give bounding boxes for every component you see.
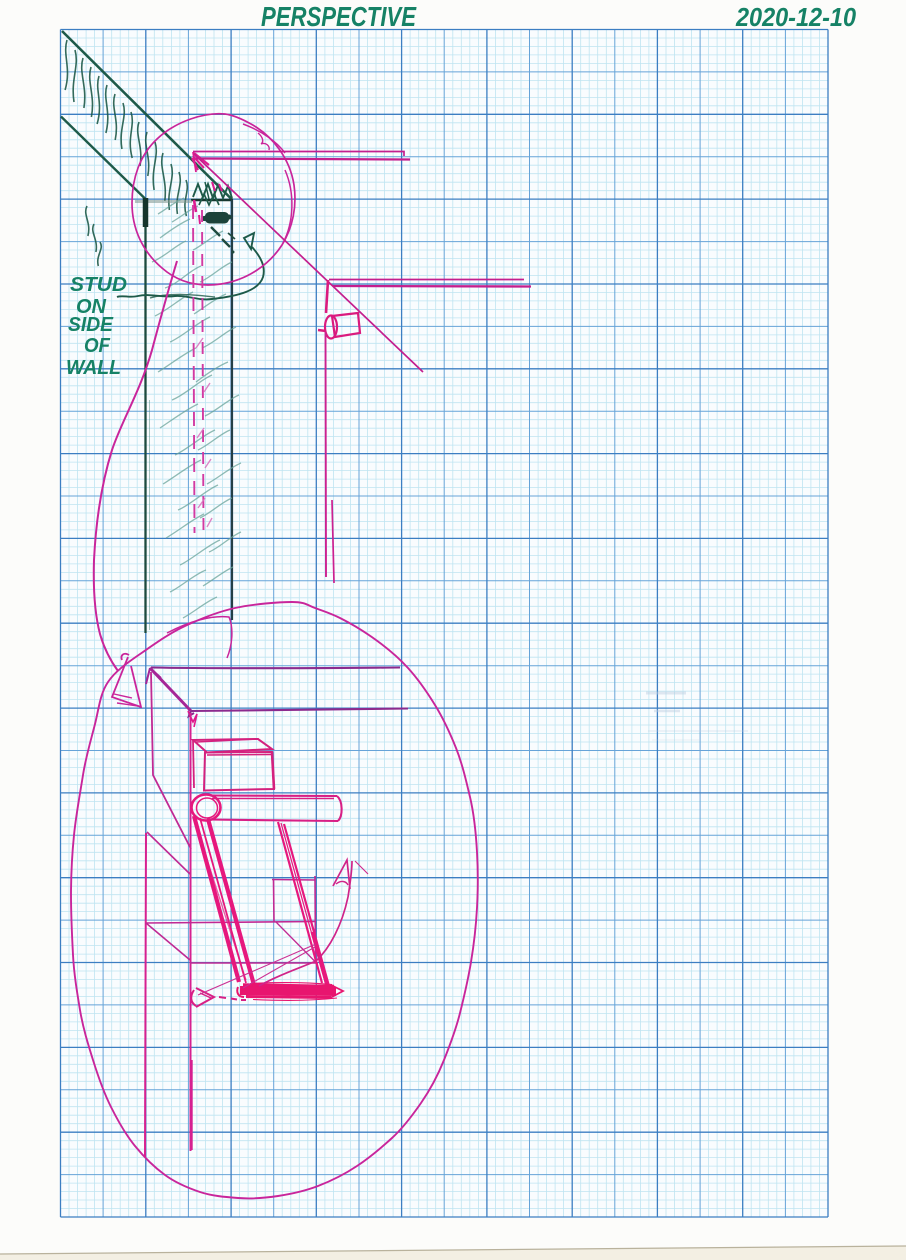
svg-text:WALL: WALL xyxy=(66,357,121,379)
svg-text:SIDE: SIDE xyxy=(68,314,114,336)
svg-text:STUD: STUD xyxy=(70,274,127,296)
svg-text:2020-12-10: 2020-12-10 xyxy=(735,2,856,32)
svg-text:OF: OF xyxy=(84,335,111,357)
svg-text:PERSPECTIVE: PERSPECTIVE xyxy=(261,1,417,32)
